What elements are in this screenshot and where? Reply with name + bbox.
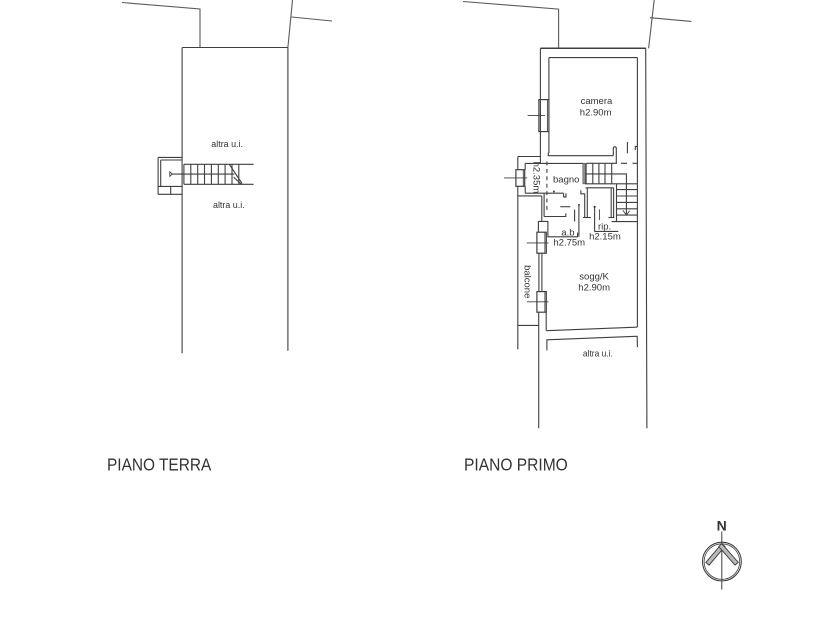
svg-text:h2.35m: h2.35m [531, 162, 542, 194]
svg-text:h2.90m: h2.90m [578, 283, 610, 294]
svg-text:N: N [717, 517, 727, 533]
svg-text:altra u.i.: altra u.i. [583, 348, 613, 359]
svg-text:balcone: balcone [522, 265, 533, 298]
svg-text:h2.75m: h2.75m [553, 237, 585, 248]
svg-text:PIANO PRIMO: PIANO PRIMO [464, 454, 568, 474]
svg-text:altra u.i.: altra u.i. [211, 139, 243, 150]
svg-text:camera: camera [581, 96, 613, 107]
svg-text:h2.15m: h2.15m [589, 232, 621, 243]
svg-text:sogg/K: sogg/K [579, 272, 609, 283]
svg-text:bagno: bagno [553, 175, 579, 186]
svg-text:h2.90m: h2.90m [580, 107, 612, 118]
svg-text:PIANO TERRA: PIANO TERRA [107, 454, 212, 474]
svg-text:altra u.i.: altra u.i. [213, 200, 245, 211]
